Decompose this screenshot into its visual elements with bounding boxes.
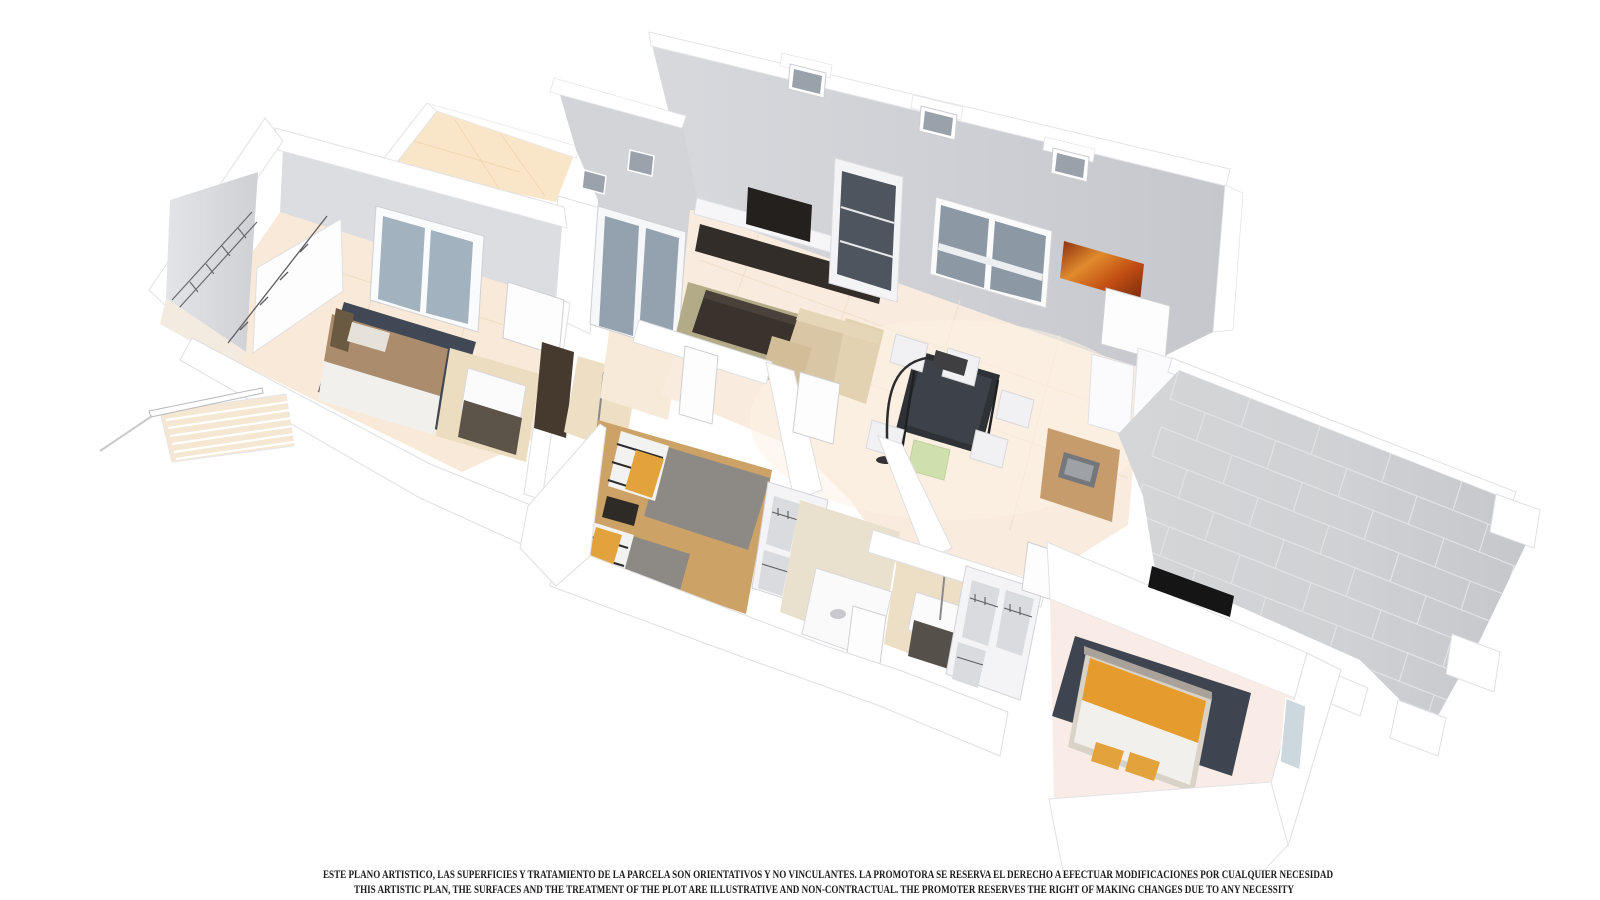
- svg-text:ESTE PLANO ARTISTICO, LAS SUPE: ESTE PLANO ARTISTICO, LAS SUPERFICIES Y …: [323, 867, 1333, 881]
- svg-text:THIS ARTISTIC PLAN, THE SURFAC: THIS ARTISTIC PLAN, THE SURFACES AND THE…: [354, 882, 1294, 896]
